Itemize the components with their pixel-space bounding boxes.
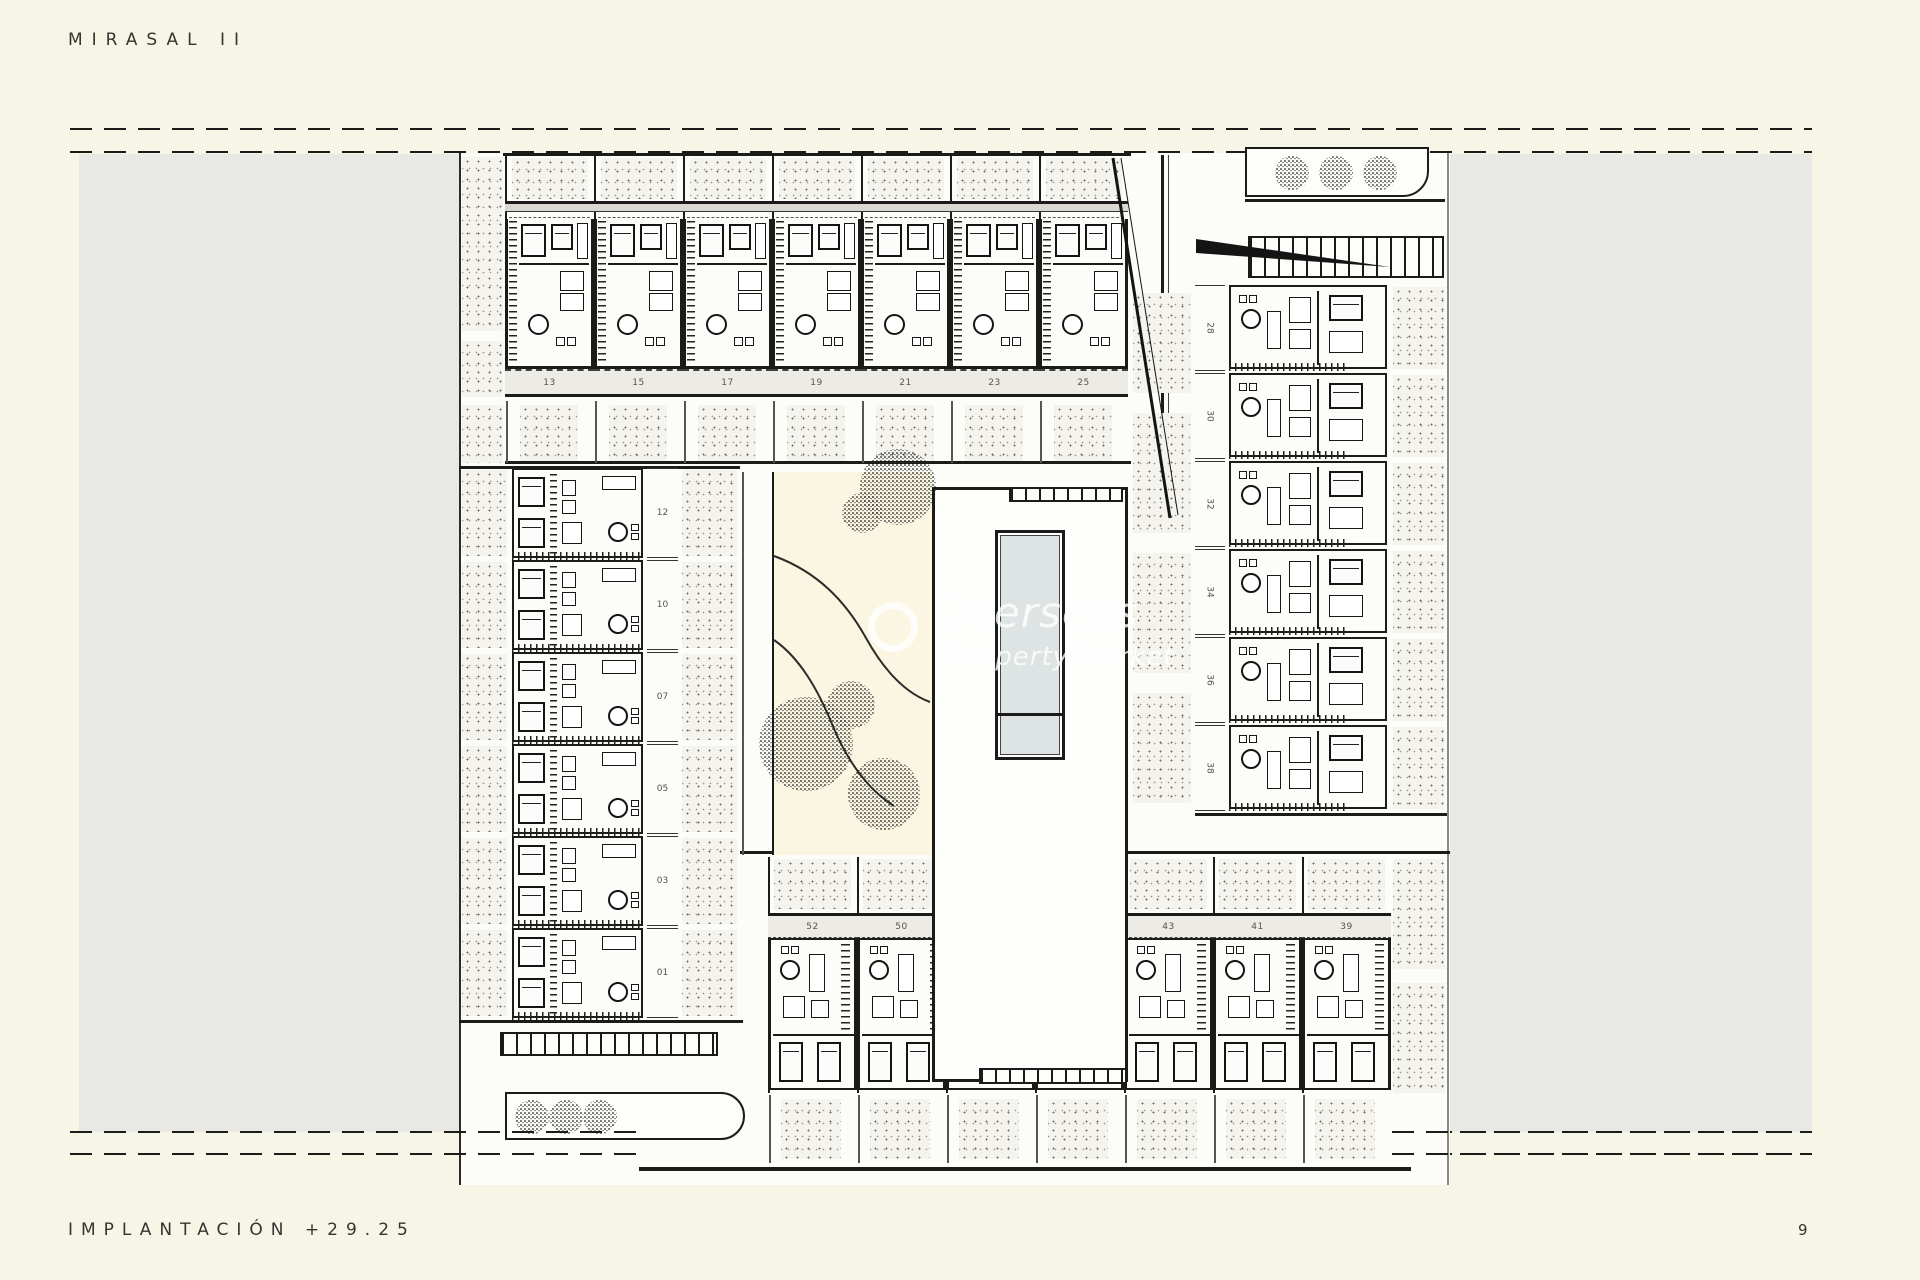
table-icon [608, 982, 628, 1002]
watermark-line2: Property Market [950, 644, 1175, 670]
bed [1135, 1042, 1159, 1082]
deck-grate [979, 1068, 1127, 1084]
unit-label: 03 [657, 876, 668, 886]
unit: 13 [505, 155, 594, 467]
unit-floorplan [594, 219, 683, 369]
bed [1329, 735, 1363, 761]
unit-label: 52 [806, 922, 818, 932]
bathroom [1289, 649, 1311, 675]
unit-floorplan [950, 219, 1039, 369]
bed [518, 518, 545, 548]
bathroom [562, 614, 582, 636]
pool-deck [932, 487, 1128, 1082]
bed [1329, 559, 1363, 585]
stairs [1229, 539, 1345, 547]
kitchen [602, 568, 636, 582]
terrace [1219, 859, 1296, 909]
unit: 36 [1195, 637, 1447, 725]
table-icon [1241, 661, 1261, 681]
watermark-logo-icon [868, 602, 918, 652]
unit-label: 43 [1162, 922, 1174, 932]
table-icon [1241, 573, 1261, 593]
top-row-units: 13 15 [505, 155, 1128, 467]
gravel-strip [1133, 293, 1191, 393]
closet [550, 842, 557, 922]
table-icon [1241, 749, 1261, 769]
gravel-strip [1393, 287, 1445, 369]
unit-floorplan [1229, 285, 1387, 369]
gravel-strip [462, 341, 503, 397]
unit: 28 [1195, 285, 1447, 373]
gravel-strip [1393, 859, 1445, 969]
unit: 38 [1195, 725, 1447, 813]
unit: 17 [683, 155, 772, 467]
gravel-strip [1393, 551, 1445, 633]
unit-label: 28 [1205, 322, 1215, 333]
bed [518, 978, 545, 1008]
terrace [774, 859, 851, 909]
unit-floorplan [768, 938, 857, 1090]
gravel-strip [1393, 463, 1445, 545]
bed [518, 794, 545, 824]
table-icon [1241, 397, 1261, 417]
gravel-strip [781, 1099, 841, 1159]
bathroom [562, 798, 582, 820]
bed [1055, 224, 1080, 257]
bathroom [562, 706, 582, 728]
bed [1351, 1042, 1375, 1082]
stairs [512, 828, 643, 836]
kitchen [1254, 954, 1270, 992]
bed [610, 224, 635, 257]
unit-label: 15 [632, 378, 644, 388]
bed [906, 1042, 930, 1082]
unit-floorplan [1039, 219, 1128, 369]
unit-label: 38 [1205, 762, 1215, 773]
bathroom [562, 522, 582, 544]
unit: 05 [459, 744, 740, 836]
terrace [1046, 158, 1122, 199]
stairs [841, 944, 850, 1030]
garden-strip [462, 838, 507, 924]
bed [1329, 471, 1363, 497]
stairs [512, 644, 643, 652]
closet [550, 658, 557, 738]
stairs [776, 221, 784, 363]
kitchen [602, 844, 636, 858]
gravel-strip [1315, 1099, 1375, 1159]
gravel-strip [682, 930, 737, 1016]
terrace [863, 859, 940, 909]
boundary-dashed-line [70, 1153, 642, 1155]
plan-wall [459, 1020, 743, 1023]
bed [1262, 1042, 1286, 1082]
kitchen [1343, 954, 1359, 992]
terrace [512, 158, 588, 199]
bed [779, 1042, 803, 1082]
terrace [868, 158, 944, 199]
table-icon [1241, 485, 1261, 505]
kitchen [916, 271, 940, 291]
stairs [1197, 944, 1206, 1030]
unit-label: 01 [657, 968, 668, 978]
bed [518, 886, 545, 916]
table-icon [1136, 960, 1156, 980]
closet [550, 474, 557, 554]
bed [877, 224, 902, 257]
table-icon [869, 960, 889, 980]
unit: 23 [950, 155, 1039, 467]
unit-label: 13 [543, 378, 555, 388]
unit-label: 10 [657, 600, 668, 610]
gravel-strip [1393, 375, 1445, 457]
kitchen [602, 476, 636, 490]
table-icon [973, 314, 994, 335]
gravel-strip [1133, 413, 1191, 533]
table-icon [780, 960, 800, 980]
stairs [865, 221, 873, 363]
unit-label: 50 [895, 922, 907, 932]
garden-strip [462, 562, 507, 648]
gravel-strip [787, 405, 845, 461]
gravel-strip [520, 405, 578, 461]
unit-floorplan [512, 836, 643, 926]
closet [550, 750, 557, 830]
kitchen [1165, 954, 1181, 992]
unit-label: 12 [657, 508, 668, 518]
kitchen [1094, 271, 1118, 291]
garden-strip [462, 930, 507, 1016]
gravel-strip [462, 405, 503, 463]
kitchen [738, 271, 762, 291]
bathroom [1289, 385, 1311, 411]
bed [518, 702, 545, 732]
plan-wall [1245, 199, 1445, 202]
unit-floorplan [512, 468, 643, 558]
bed [996, 224, 1018, 250]
unit-floorplan [1229, 373, 1387, 457]
bathroom [562, 890, 582, 912]
stairs [954, 221, 962, 363]
unit: 07 [459, 652, 740, 744]
table-icon [1314, 960, 1334, 980]
table-icon [608, 522, 628, 542]
unit: 12 [459, 468, 740, 560]
page: { "page": { "title": "MIRASAL II", "foot… [0, 0, 1920, 1280]
table-icon [608, 798, 628, 818]
unit-floorplan [772, 219, 861, 369]
watermark-line1: Overseas [934, 592, 1138, 634]
gravel-strip [965, 405, 1023, 461]
kitchen [602, 660, 636, 674]
bed [699, 224, 724, 257]
unit-floorplan [505, 219, 594, 369]
stairs [1229, 451, 1345, 459]
stairs [1229, 715, 1345, 723]
kitchen [1267, 575, 1281, 613]
watermark: Overseas Property Market [868, 592, 1208, 692]
unit-floorplan [512, 928, 643, 1018]
unit: 30 [1195, 373, 1447, 461]
unit-floorplan [1302, 938, 1391, 1090]
planter-topright [1245, 147, 1429, 197]
bed [966, 224, 991, 257]
right-column-units: 28 30 32 [1195, 285, 1447, 813]
gravel-strip [1137, 1099, 1197, 1159]
gravel-strip [1393, 983, 1445, 1093]
bed [521, 224, 546, 257]
gravel-strip [1048, 1099, 1108, 1159]
table-icon [1241, 309, 1261, 329]
terrace [957, 158, 1033, 199]
garden-strip [462, 470, 507, 556]
unit-floorplan [512, 560, 643, 650]
bed [640, 224, 662, 250]
bed [729, 224, 751, 250]
closet [550, 934, 557, 1014]
kitchen [1267, 399, 1281, 437]
bed [518, 610, 545, 640]
gravel-strip [959, 1099, 1019, 1159]
bed [551, 224, 573, 250]
path-edge [742, 472, 744, 855]
gravel-strip [462, 157, 503, 331]
bed [1329, 295, 1363, 321]
kitchen [602, 752, 636, 766]
bed [1329, 383, 1363, 409]
kitchen [898, 954, 914, 992]
unit: 19 [772, 155, 861, 467]
table-icon [608, 706, 628, 726]
kitchen [1005, 271, 1029, 291]
kitchen [1267, 751, 1281, 789]
unit-floorplan [683, 219, 772, 369]
stairs [512, 920, 643, 928]
unit-label: 39 [1340, 922, 1352, 932]
gravel-strip [682, 654, 737, 740]
kitchen [649, 271, 673, 291]
unit: 21 [861, 155, 950, 467]
unit: 01 [459, 928, 740, 1020]
unit-floorplan [1213, 938, 1302, 1090]
bathroom [562, 982, 582, 1004]
footer-label: IMPLANTACIÓN +29.25 [68, 1220, 416, 1240]
table-icon [884, 314, 905, 335]
unit: 39 [1302, 857, 1391, 1173]
gravel-strip [682, 562, 737, 648]
gravel-strip [1393, 727, 1445, 809]
bathroom [1228, 996, 1250, 1018]
bathroom [1289, 473, 1311, 499]
boundary-dashed-line [1392, 1153, 1812, 1155]
gravel-strip [1393, 639, 1445, 721]
unit: 32 [1195, 461, 1447, 549]
left-gray-parcel [79, 154, 459, 1132]
kitchen [602, 936, 636, 950]
bed [1329, 647, 1363, 673]
deck-grate [1009, 487, 1123, 502]
bed [518, 937, 545, 967]
unit-floorplan [1124, 938, 1213, 1090]
gravel-strip [1054, 405, 1112, 461]
parking-strip [500, 1032, 718, 1056]
bathroom [872, 996, 894, 1018]
unit: 41 [1213, 857, 1302, 1173]
bed [518, 661, 545, 691]
kitchen [1267, 311, 1281, 349]
unit-label: 19 [810, 378, 822, 388]
bathroom [1317, 996, 1339, 1018]
kitchen [809, 954, 825, 992]
unit: 03 [459, 836, 740, 928]
plan-right-boundary [1447, 153, 1449, 1185]
table-icon [617, 314, 638, 335]
table-icon [1062, 314, 1083, 335]
bed [1313, 1042, 1337, 1082]
bed [1173, 1042, 1197, 1082]
bathroom [1289, 297, 1311, 323]
page-title: MIRASAL II [68, 30, 248, 50]
boundary-dashed-line [70, 1131, 642, 1133]
unit-label: 23 [988, 378, 1000, 388]
unit-label: 41 [1251, 922, 1263, 932]
kitchen [560, 271, 584, 291]
unit-label: 07 [657, 692, 668, 702]
table-icon [608, 890, 628, 910]
unit-floorplan [512, 744, 643, 834]
garden-strip [462, 746, 507, 832]
bathroom [1139, 996, 1161, 1018]
gravel-strip [682, 838, 737, 924]
bed [1085, 224, 1107, 250]
unit: 52 [768, 857, 857, 1173]
bed [518, 477, 545, 507]
unit: 34 [1195, 549, 1447, 637]
stairs [687, 221, 695, 363]
table-icon [528, 314, 549, 335]
unit-label: 30 [1205, 410, 1215, 421]
gravel-strip [609, 405, 667, 461]
bed [907, 224, 929, 250]
unit-floorplan [861, 219, 950, 369]
table-icon [795, 314, 816, 335]
plan-wall [1195, 813, 1447, 816]
right-gray-parcel [1450, 154, 1812, 1132]
bathroom [1289, 737, 1311, 763]
stairs [598, 221, 606, 363]
gravel-strip [1226, 1099, 1286, 1159]
stairs [1043, 221, 1051, 363]
bed [818, 224, 840, 250]
gravel-strip [1133, 693, 1191, 803]
bed [518, 569, 545, 599]
left-column-units: 12 10 [459, 468, 740, 1020]
parking-strip [1248, 236, 1444, 278]
closet [550, 566, 557, 646]
unit-floorplan [512, 652, 643, 742]
bed [518, 845, 545, 875]
unit: 25 [1039, 155, 1128, 467]
table-icon [1225, 960, 1245, 980]
terrace [779, 158, 855, 199]
unit-label: 05 [657, 784, 668, 794]
unit: 15 [594, 155, 683, 467]
bed [518, 753, 545, 783]
kitchen [827, 271, 851, 291]
bed [788, 224, 813, 257]
stairs [1229, 363, 1345, 371]
table-icon [608, 614, 628, 634]
unit-floorplan [1229, 549, 1387, 633]
gravel-strip [682, 470, 737, 556]
unit-label: 17 [721, 378, 733, 388]
unit: 10 [459, 560, 740, 652]
terrace [690, 158, 766, 199]
bathroom [1289, 561, 1311, 587]
stairs [509, 221, 517, 363]
table-icon [706, 314, 727, 335]
terrace [601, 158, 677, 199]
garden-strip [462, 654, 507, 740]
stairs [1286, 944, 1295, 1030]
kitchen [1267, 663, 1281, 701]
gravel-strip [698, 405, 756, 461]
stairs [1229, 627, 1345, 635]
unit: 43 [1124, 857, 1213, 1173]
bed [868, 1042, 892, 1082]
stairs [512, 1012, 643, 1020]
gravel-strip [876, 405, 934, 461]
stairs [512, 552, 643, 560]
unit-floorplan [1229, 461, 1387, 545]
bed [1224, 1042, 1248, 1082]
bed [817, 1042, 841, 1082]
pool-divider [998, 713, 1062, 716]
stairs [1375, 944, 1384, 1030]
gravel-strip [682, 746, 737, 832]
kitchen [1267, 487, 1281, 525]
bathroom [783, 996, 805, 1018]
gravel-strip [870, 1099, 930, 1159]
unit-label: 21 [899, 378, 911, 388]
unit-floorplan [1229, 637, 1387, 721]
unit-label: 25 [1077, 378, 1089, 388]
unit-floorplan [1229, 725, 1387, 809]
boundary-dashed-line [70, 128, 1812, 130]
stairs [1229, 803, 1345, 811]
terrace [1308, 859, 1385, 909]
stairs [512, 736, 643, 744]
unit-label: 32 [1205, 498, 1215, 509]
page-number: 9 [1798, 1221, 1809, 1239]
terrace [1130, 859, 1207, 909]
boundary-dashed-line [1392, 1131, 1812, 1133]
